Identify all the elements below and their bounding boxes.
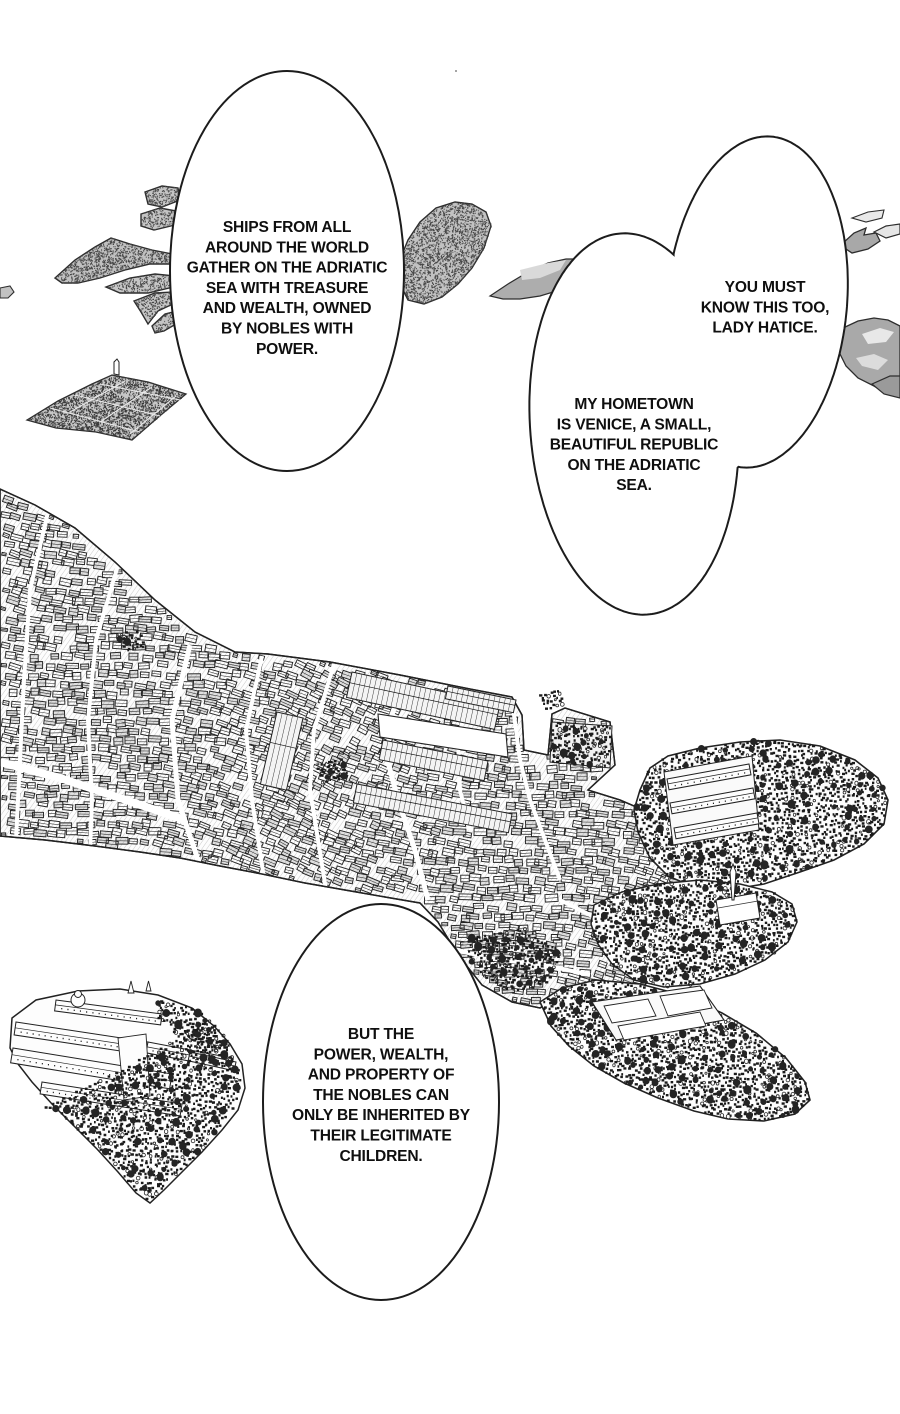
svg-text:BY NOBLES WITH: BY NOBLES WITH — [221, 321, 353, 338]
svg-text:POWER.: POWER. — [256, 341, 318, 358]
svg-text:BEAUTIFUL REPUBLIC: BEAUTIFUL REPUBLIC — [550, 437, 719, 454]
svg-text:MY HOMETOWN: MY HOMETOWN — [574, 396, 693, 413]
svg-text:AROUND THE WORLD: AROUND THE WORLD — [205, 239, 369, 256]
svg-text:BUT THE: BUT THE — [348, 1026, 414, 1043]
svg-text:SEA.: SEA. — [616, 477, 652, 494]
svg-text:SEA WITH TREASURE: SEA WITH TREASURE — [206, 280, 368, 297]
svg-text:AND PROPERTY OF: AND PROPERTY OF — [308, 1067, 455, 1084]
svg-text:ON THE ADRIATIC: ON THE ADRIATIC — [567, 457, 700, 474]
svg-text:LADY HATICE.: LADY HATICE. — [712, 320, 817, 337]
svg-text:YOU MUST: YOU MUST — [725, 279, 806, 296]
svg-text:GATHER ON THE ADRIATIC: GATHER ON THE ADRIATIC — [187, 260, 388, 277]
svg-text:ONLY BE INHERITED BY: ONLY BE INHERITED BY — [292, 1107, 471, 1124]
svg-text:THEIR LEGITIMATE: THEIR LEGITIMATE — [310, 1128, 451, 1145]
svg-text:SHIPS FROM ALL: SHIPS FROM ALL — [223, 219, 352, 236]
svg-text:CHILDREN.: CHILDREN. — [339, 1148, 422, 1165]
svg-text:THE NOBLES CAN: THE NOBLES CAN — [313, 1087, 449, 1104]
svg-text:IS VENICE, A SMALL,: IS VENICE, A SMALL, — [557, 416, 711, 433]
svg-text:AND WEALTH, OWNED: AND WEALTH, OWNED — [203, 300, 372, 317]
svg-text:KNOW THIS TOO,: KNOW THIS TOO, — [701, 299, 830, 316]
svg-text:POWER, WEALTH,: POWER, WEALTH, — [314, 1046, 449, 1063]
